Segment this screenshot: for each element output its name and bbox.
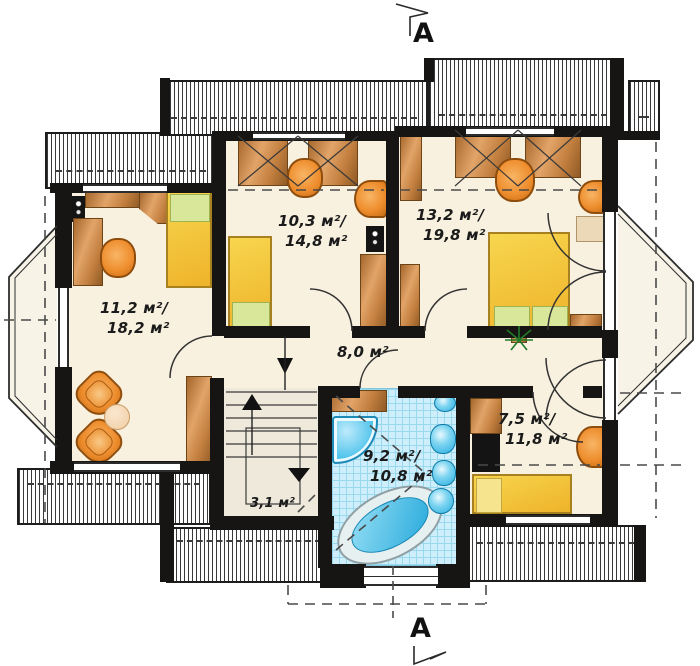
wall-segment [212,131,226,336]
area-line1: 10,3 м²/ [278,212,346,230]
wall-segment [424,58,434,82]
terrace-door [603,358,616,420]
bed [472,474,572,514]
office-chair [100,238,136,278]
area-line2: 11,8 м² [498,430,567,448]
bay-window-left [8,225,57,448]
section-mark-bottom [414,646,446,664]
roof-overhang-top-far-right [628,80,660,135]
room-area-label: 7,5 м²/ 11,8 м² [498,410,567,449]
area-line2: 19,8 м² [416,226,485,244]
bathroom-window [364,566,438,586]
area-line1: 13,2 м²/ [416,206,484,224]
desk [73,218,103,286]
area-line2: 18,2 м² [100,319,169,337]
area-line1: 8,0 м² [337,343,389,361]
wardrobe [186,376,212,468]
wall-segment [467,326,602,338]
stove-icon [472,434,500,472]
wall-segment [320,564,366,588]
office-chair [495,158,535,202]
wardrobe [400,133,422,201]
wardrobe [360,254,388,328]
wall-segment [210,378,224,522]
area-line1: 9,2 м²/ [363,447,421,465]
wall-segment [386,131,399,336]
area-line1: 7,5 м²/ [498,410,556,428]
tv-icon [366,226,384,252]
window [506,515,590,525]
window [74,462,180,472]
bay-window-right [618,205,694,415]
wall-segment [210,516,334,530]
wall-segment [55,367,72,473]
area-line2: 10,8 м² [363,467,432,485]
window-mullion [364,576,438,577]
wall-segment [224,326,310,338]
wardrobe [400,264,420,330]
wall-segment [610,58,624,135]
roof-overhang-bottom-left [17,468,211,525]
dormer-desk [238,136,288,186]
window [83,184,167,193]
armchair [354,180,388,218]
pillow [170,194,210,222]
bidet [432,460,456,486]
wall-segment [602,420,618,522]
pillow [476,478,502,513]
roof-plate-dashed-line [171,117,417,119]
roof-plate-dashed-line [639,116,649,118]
wall-segment [616,131,660,140]
roof-overhang-bottom-right [466,525,646,582]
area-line1: 11,2 м²/ [100,299,168,317]
wall-segment [55,183,72,288]
nightstand [576,216,604,242]
window [466,127,554,136]
room-area-label: 13,2 м²/ 19,8 м² [416,206,485,245]
wall-segment [352,326,425,338]
pillow [232,302,270,327]
wall-segment [318,386,332,568]
toilet [430,424,456,454]
roof-overhang-top-middle [160,80,428,136]
window [58,288,69,367]
wall-segment [456,388,470,570]
bed [166,190,212,288]
wall-segment [583,386,602,398]
roof-plate-dashed-line [56,170,206,172]
area-line1: 3,1 м² [250,496,295,511]
room-area-label: 11,2 м²/ 18,2 м² [100,299,169,338]
room-area-label: 8,0 м² [337,343,389,363]
round-table [104,404,130,430]
wall-segment [160,468,174,582]
room-area-label: 10,3 м²/ 14,8 м² [278,212,347,251]
wall-segment [332,386,360,398]
double-bed [488,232,570,332]
section-letter-top: A [413,18,434,49]
office-chair [287,158,323,198]
roof-plate-dashed-line [477,542,635,544]
roof-plate-dashed-line [28,483,200,485]
window [253,132,345,140]
roof-plate-dashed-line [177,540,321,542]
section-letter-bottom: A [410,613,431,644]
washbasin-small [428,488,454,514]
area-line2: 14,8 м² [278,232,347,250]
floor-plan: 11,2 м²/ 18,2 м² 10,3 м²/ 14,8 м² 13,2 м… [0,0,700,666]
wall-segment [436,564,470,588]
wall-segment [160,78,170,136]
roof-overhang-top-left [45,132,217,189]
room-area-label: 9,2 м²/ 10,8 м² [363,447,432,486]
seat-cushion [83,426,116,459]
wall-segment [634,525,646,582]
wall-segment [602,330,618,358]
balcony-french-door [603,212,616,330]
roof-plate-dashed-line [439,114,607,116]
bed [228,236,272,328]
roof-overhang-bottom-middle [166,527,332,583]
roof-overhang-top-right [428,58,618,135]
room-area-label: 3,1 м² [250,496,295,513]
